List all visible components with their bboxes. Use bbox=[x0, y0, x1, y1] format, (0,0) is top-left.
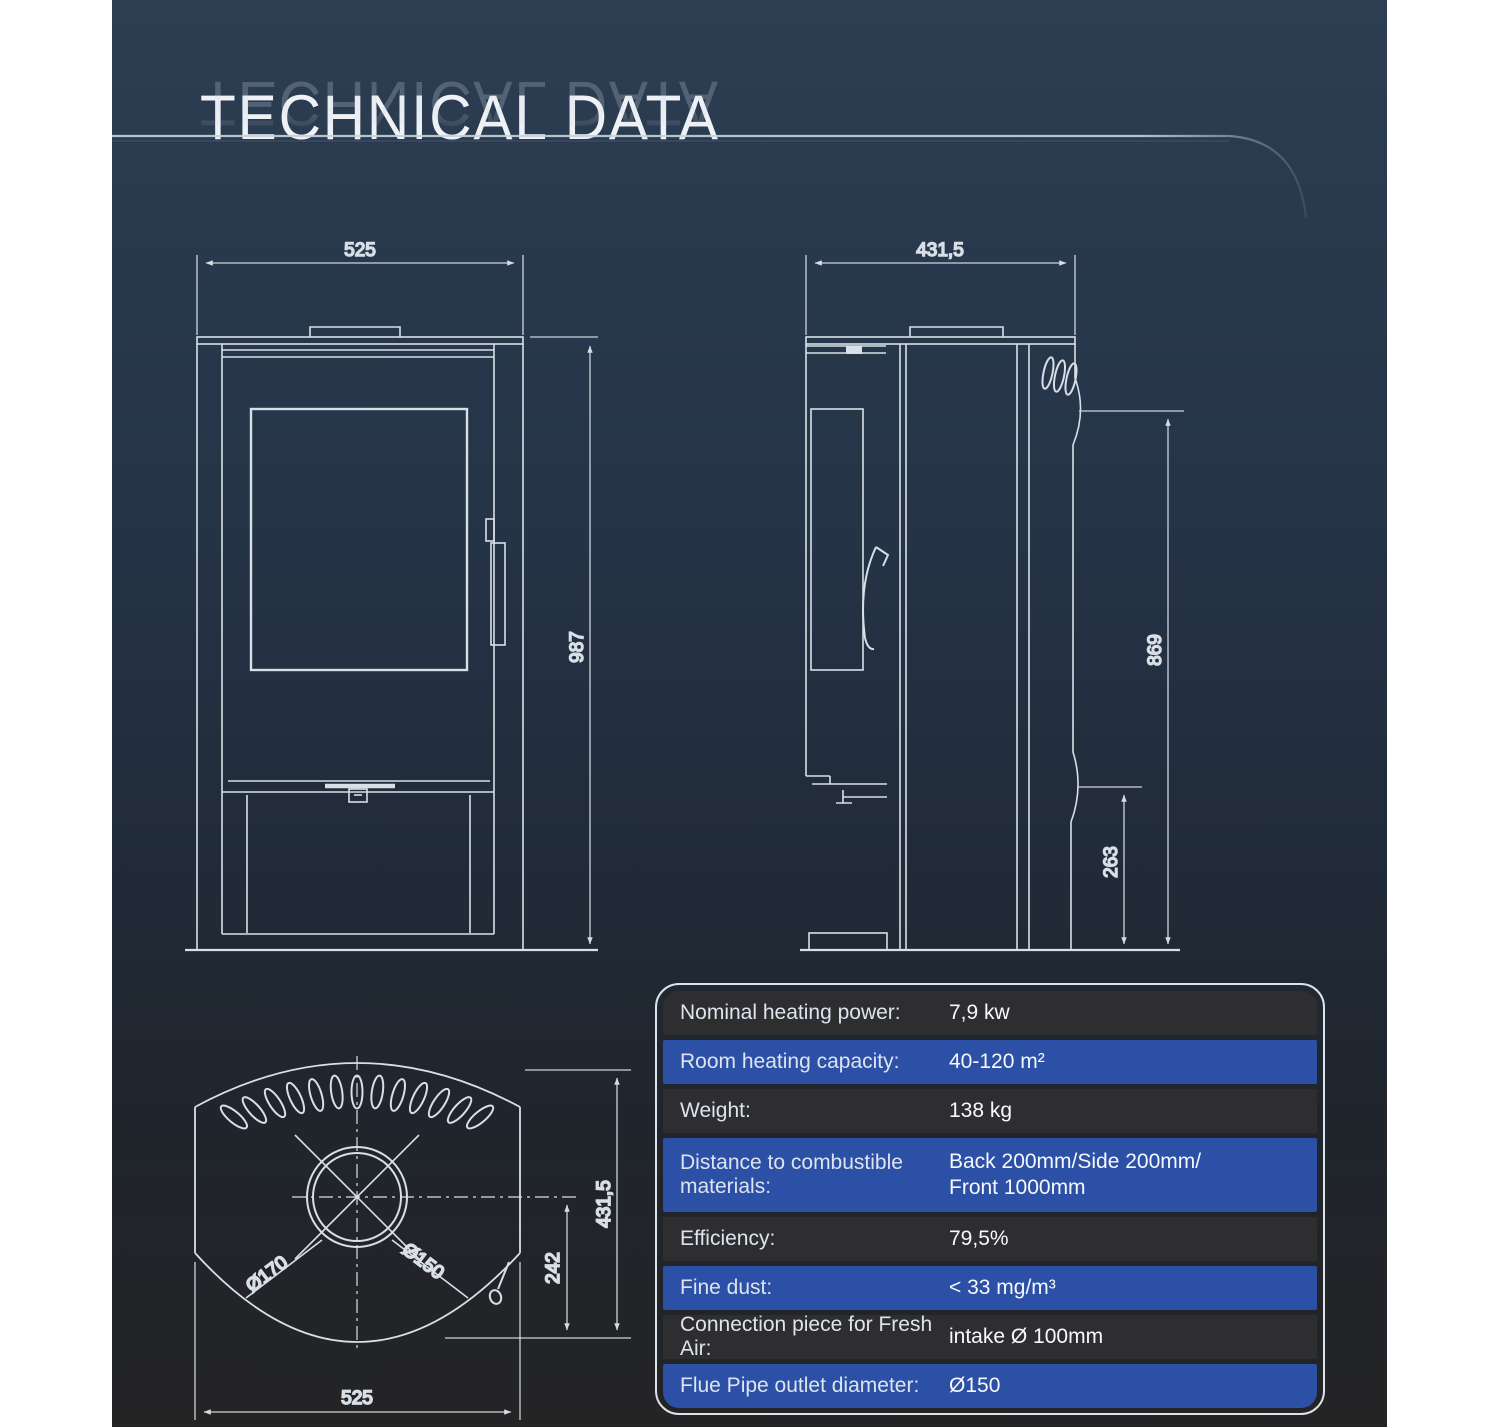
row-value: 138 kg bbox=[949, 1098, 1317, 1124]
row-value: 40-120 m² bbox=[949, 1049, 1317, 1075]
side-depth-dimension bbox=[806, 255, 1075, 335]
top-key-handle bbox=[488, 1262, 509, 1305]
side-flue-louvres bbox=[1040, 356, 1078, 395]
title-underline-swoosh bbox=[112, 136, 1306, 218]
row-value: 7,9 kw bbox=[949, 1000, 1317, 1026]
front-door-window bbox=[251, 409, 467, 670]
table-row: Flue Pipe outlet diameter: Ø150 bbox=[663, 1364, 1317, 1408]
front-height-label: 987 bbox=[567, 631, 588, 663]
table-row: Distance to combustible materials: Back … bbox=[663, 1138, 1317, 1212]
row-value: Back 200mm/Side 200mm/ Front 1000mm bbox=[949, 1149, 1317, 1202]
row-value: 79,5% bbox=[949, 1226, 1317, 1252]
top-view-drawing: Ø170 Ø150 242 431,5 525 bbox=[195, 1056, 631, 1420]
table-row: Efficiency: 79,5% bbox=[663, 1217, 1317, 1261]
top-width-label: 525 bbox=[341, 1388, 373, 1409]
front-door-handle bbox=[486, 519, 505, 645]
side-flue-height-label: 869 bbox=[1145, 634, 1166, 666]
spec-table: Nominal heating power: 7,9 kw Room heati… bbox=[655, 983, 1325, 1415]
table-row: Connection piece for Fresh Air: intake Ø… bbox=[663, 1315, 1317, 1359]
table-row: Fine dust: < 33 mg/m³ bbox=[663, 1266, 1317, 1310]
side-foot-bracket bbox=[806, 776, 887, 803]
side-view-drawing: 431,5 bbox=[800, 240, 1184, 950]
row-label: Connection piece for Fresh Air: bbox=[680, 1313, 949, 1361]
row-value-line2: Front 1000mm bbox=[949, 1175, 1317, 1201]
row-label: Fine dust: bbox=[680, 1276, 949, 1300]
side-flue-height-dimension bbox=[1079, 411, 1184, 944]
row-value: < 33 mg/m³ bbox=[949, 1275, 1317, 1301]
row-label: Efficiency: bbox=[680, 1227, 949, 1251]
front-view-drawing: 525 987 bbox=[185, 240, 598, 950]
page-background: TECHNICAL DATA TECHNICAL DATA 525 bbox=[112, 0, 1387, 1427]
row-value: intake Ø 100mm bbox=[949, 1324, 1317, 1350]
side-door-panel bbox=[811, 409, 863, 670]
top-center-label: 242 bbox=[543, 1252, 564, 1284]
side-door-handle bbox=[863, 547, 888, 649]
front-door-latch bbox=[325, 786, 395, 802]
side-depth-label: 431,5 bbox=[916, 240, 964, 261]
row-label: Nominal heating power: bbox=[680, 1001, 949, 1025]
row-label: Weight: bbox=[680, 1099, 949, 1123]
table-row: Nominal heating power: 7,9 kw bbox=[663, 991, 1317, 1035]
side-intake-height-label: 263 bbox=[1101, 846, 1122, 878]
row-label: Room heating capacity: bbox=[680, 1050, 949, 1074]
front-width-label: 525 bbox=[344, 240, 376, 261]
front-width-dimension bbox=[197, 255, 523, 335]
row-label: Flue Pipe outlet diameter: bbox=[680, 1374, 949, 1398]
table-row: Room heating capacity: 40-120 m² bbox=[663, 1040, 1317, 1084]
side-back-edge bbox=[1071, 344, 1081, 950]
table-row: Weight: 138 kg bbox=[663, 1089, 1317, 1133]
top-outer-diameter-label: Ø170 bbox=[242, 1252, 292, 1297]
top-depth-label: 431,5 bbox=[594, 1180, 615, 1228]
row-value-line1: Back 200mm/Side 200mm/ bbox=[949, 1149, 1317, 1175]
row-value: Ø150 bbox=[949, 1373, 1317, 1399]
row-label: Distance to combustible materials: bbox=[680, 1151, 949, 1199]
